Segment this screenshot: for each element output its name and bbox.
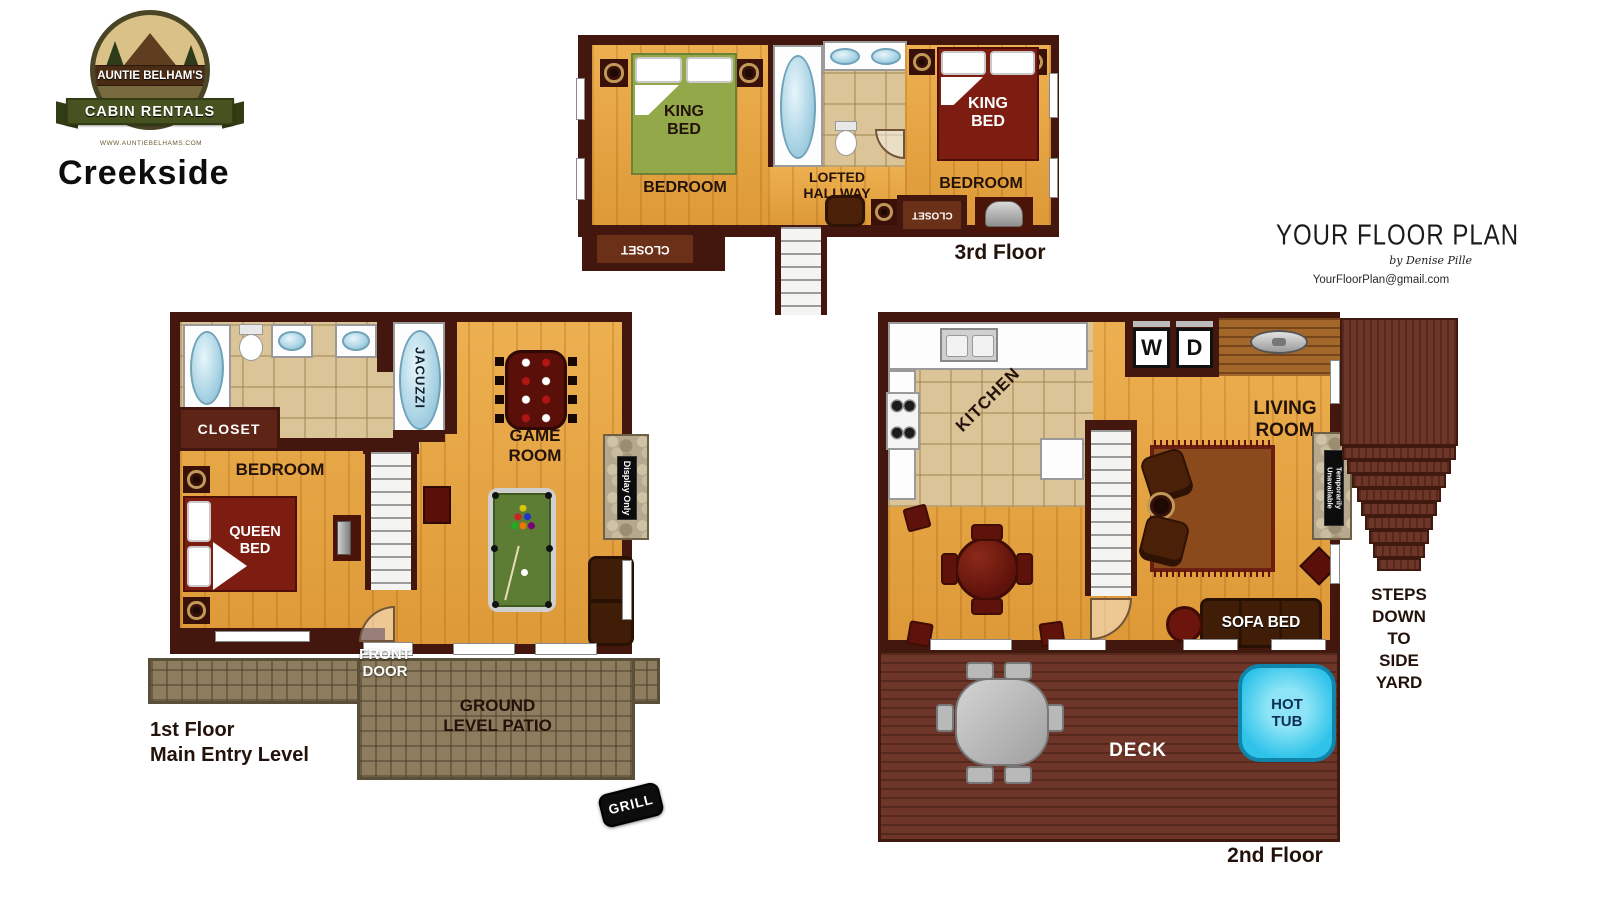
- deck-chair-icon: [936, 704, 954, 732]
- sofa-bed-label: SOFA BED: [1222, 614, 1301, 632]
- fireplace-sign-label: Temporarily Unavailable: [1325, 467, 1342, 509]
- wall-stub: [393, 430, 445, 442]
- closet-label: CLOSET: [198, 421, 261, 437]
- staircase: [365, 452, 417, 590]
- game-room-label: GAME ROOM: [475, 426, 595, 465]
- credit-byline: by Denise Pille: [1276, 251, 1486, 269]
- fireplace-sign: Display Only: [617, 456, 637, 520]
- jacuzzi-surround: JACUZZI: [393, 322, 445, 434]
- toilet-icon: [833, 121, 859, 157]
- nightstand-speaker-icon: [735, 59, 763, 87]
- bed-label: QUEEN BED: [215, 524, 295, 557]
- steps-note: STEPS DOWN TO SIDE YARD: [1333, 584, 1465, 694]
- sink-icon: [830, 48, 860, 65]
- floor2-plan: KITCHEN W D LIVING ROOM Temporarily Unav…: [878, 312, 1473, 882]
- sink-icon: [342, 331, 370, 351]
- bathtub-icon: [190, 331, 224, 405]
- cabin-name: Creekside: [58, 154, 288, 193]
- deck-table-icon: [955, 678, 1049, 766]
- dining-chair-icon: [1016, 553, 1033, 585]
- king-bed-red-icon: KING BED: [937, 47, 1039, 161]
- toilet-icon: [237, 324, 265, 362]
- outdoor-step: [1377, 558, 1421, 571]
- outdoor-step: [1352, 474, 1446, 488]
- window: [576, 158, 585, 200]
- king-bed-green-icon: KING BED: [631, 53, 737, 175]
- side-deck-extension: [1340, 318, 1458, 446]
- queen-bed-icon: QUEEN BED: [183, 496, 297, 592]
- logo-arc-title-text: AUNTIE BELHAM'S: [97, 70, 203, 82]
- deck-chair-icon: [966, 766, 994, 784]
- dining-chair-icon: [971, 524, 1003, 541]
- outdoor-step: [1373, 544, 1425, 558]
- window: [576, 78, 585, 120]
- ceiling-fan-icon: [1250, 330, 1308, 354]
- dryer: D: [1176, 328, 1213, 368]
- deck-label: DECK: [1078, 740, 1198, 762]
- bathtub-icon: [780, 55, 816, 159]
- window: [1049, 158, 1058, 198]
- pool-table-icon: [488, 488, 556, 612]
- billiard-balls-icon: [509, 505, 537, 531]
- room-label: BEDROOM: [615, 179, 755, 197]
- kitchen-sink-icon: [940, 328, 998, 362]
- room-label: BEDROOM: [911, 175, 1051, 193]
- poker-table-icon: [505, 350, 567, 430]
- chair-icon: [825, 195, 865, 227]
- deck-chair-icon: [1004, 766, 1032, 784]
- outdoor-step: [1357, 488, 1441, 502]
- window: [622, 560, 632, 620]
- window: [215, 631, 310, 642]
- fireplace-icon: Display Only: [603, 434, 649, 540]
- cue-ball-icon: [521, 569, 528, 576]
- window: [1330, 360, 1340, 404]
- vanity-counter: [823, 41, 907, 71]
- designer-credit: YOUR FLOOR PLAN by Denise Pille YourFloo…: [1276, 222, 1486, 282]
- floor2-label: 2nd Floor: [1200, 844, 1350, 868]
- cabinet-icon: [423, 486, 451, 524]
- outdoor-step: [1365, 516, 1433, 530]
- kitchen-island: [1040, 438, 1084, 480]
- closet-label: CLOSET: [912, 209, 953, 221]
- floor3-plan: KING BED BEDROOM CLOSET LOFTED HALLWAY: [575, 33, 1070, 318]
- fireplace-sign-label: Display Only: [622, 461, 632, 516]
- dining-chair-icon: [941, 553, 958, 585]
- sink-counter: [335, 324, 377, 358]
- front-door-label: FRONT DOOR: [340, 646, 430, 681]
- sink-counter: [271, 324, 313, 358]
- hot-tub: HOT TUB: [1238, 664, 1336, 762]
- dining-table-icon: [955, 537, 1019, 601]
- room-label: BEDROOM: [205, 460, 355, 480]
- nightstand-speaker-icon: [183, 466, 210, 493]
- fireplace-sign: Temporarily Unavailable: [1324, 450, 1344, 526]
- closet-box: CLOSET: [178, 407, 280, 451]
- floor3-label: 3rd Floor: [925, 241, 1075, 265]
- tub-room: [773, 45, 823, 167]
- patio-label: GROUND LEVEL PATIO: [390, 696, 605, 735]
- dining-chair-icon: [971, 598, 1003, 615]
- grill-tag: GRILL: [597, 781, 665, 829]
- stove-icon: [886, 392, 920, 450]
- bed-label: KING BED: [939, 95, 1037, 132]
- jacuzzi-label: JACUZZI: [412, 347, 427, 409]
- window: [1049, 73, 1058, 118]
- cue-stick-icon: [504, 546, 519, 601]
- logo-banner-text: CABIN RENTALS: [85, 104, 215, 120]
- dryer-controls: [1176, 321, 1213, 327]
- credit-email: YourFloorPlan@gmail.com: [1276, 270, 1486, 288]
- staircase: [1085, 430, 1137, 596]
- logo-arc-title: AUNTIE BELHAM'S: [90, 65, 210, 86]
- bed-label: KING BED: [633, 103, 735, 140]
- washer-controls: [1133, 321, 1170, 327]
- outdoor-step: [1342, 446, 1456, 460]
- brand-logo: AUNTIE BELHAM'S SMOKY MOUNTAINS, TN CABI…: [52, 8, 252, 198]
- hot-tub-label: HOT TUB: [1271, 696, 1303, 731]
- washer: W: [1133, 328, 1170, 368]
- tub-surround: [183, 324, 231, 412]
- floorplan-canvas: AUNTIE BELHAM'S SMOKY MOUNTAINS, TN CABI…: [0, 0, 1600, 900]
- outdoor-step: [1361, 502, 1437, 516]
- logo-banner: CABIN RENTALS: [66, 98, 234, 125]
- wall-stub: [445, 322, 457, 434]
- logo-website: WWW.AUNTIEBELHAMS.COM: [86, 132, 216, 150]
- nightstand-speaker-icon: [871, 199, 897, 225]
- sink-icon: [278, 331, 306, 351]
- credit-title: YOUR FLOOR PLAN: [1276, 219, 1486, 253]
- staircase: [775, 227, 827, 315]
- closet-box: CLOSET: [597, 235, 693, 263]
- nightstand-speaker-icon: [909, 49, 935, 75]
- grill-label: GRILL: [607, 792, 655, 818]
- nightstand-speaker-icon: [183, 597, 210, 624]
- wall-stub: [377, 322, 393, 372]
- window: [453, 643, 515, 655]
- dresser-icon: [975, 197, 1033, 233]
- outdoor-step: [1369, 530, 1429, 544]
- floor1-plan: JACUZZI CLOSET BEDROOM QUEEN BED GAME RO…: [145, 310, 675, 855]
- ottoman-icon: [1166, 606, 1203, 643]
- outdoor-step: [1347, 460, 1451, 474]
- closet-box: CLOSET: [903, 201, 961, 229]
- nightstand-speaker-icon: [600, 59, 628, 87]
- tv-stand-icon: [333, 515, 361, 561]
- window: [535, 643, 597, 655]
- sink-icon: [871, 48, 901, 65]
- floor1-label: 1st Floor Main Entry Level: [150, 718, 390, 768]
- closet-label: CLOSET: [621, 242, 670, 256]
- window: [1330, 544, 1340, 584]
